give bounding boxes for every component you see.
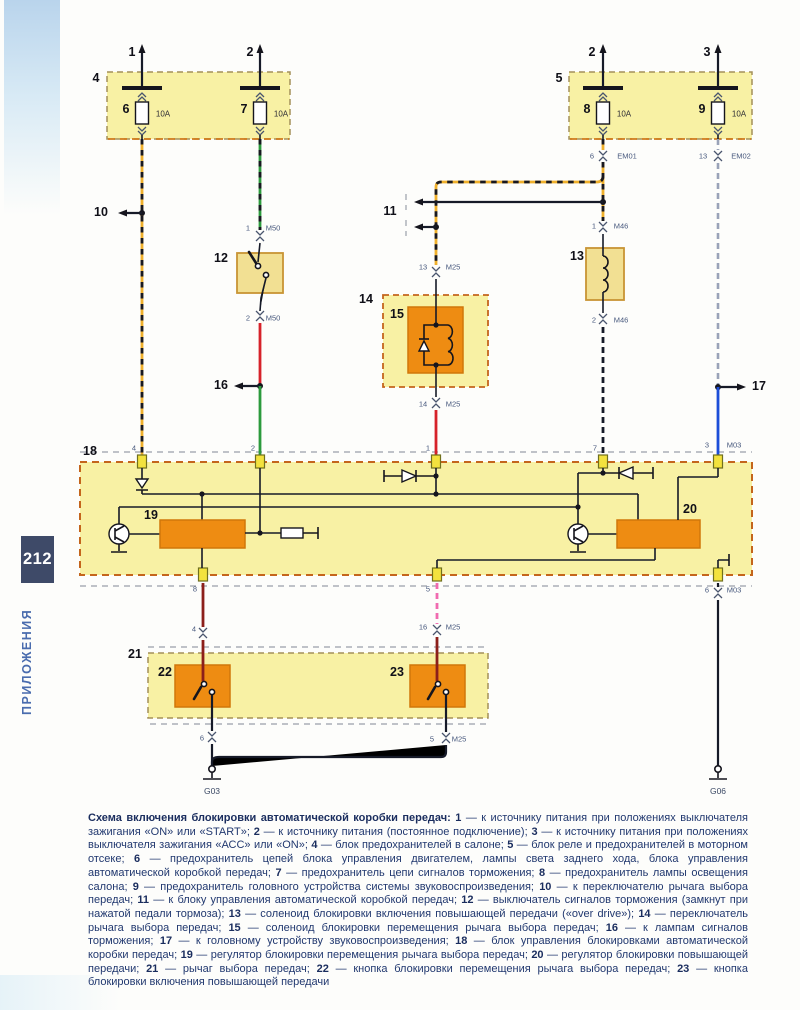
- wiring-diagram-svg: [0, 0, 800, 808]
- caption-body: 1 — к источнику питания при положениях в…: [88, 812, 748, 988]
- caption-item-text: — предохранитель головного устройства си…: [139, 881, 534, 893]
- diagram-label-19: 19: [144, 508, 158, 522]
- caption-item-number: 23: [677, 963, 689, 975]
- caption-item-number: 21: [146, 963, 158, 975]
- caption-item-number: 15: [228, 922, 240, 934]
- ground-junction-g06: [715, 766, 721, 772]
- transistor-20-icon: [568, 524, 588, 544]
- caption-item-number: 17: [160, 935, 172, 947]
- caption-item-text: — к блоку управления автоматической коро…: [149, 894, 457, 906]
- caption-item-number: 13: [229, 908, 241, 920]
- caption-item-text: — предохранитель цепи сигналов торможени…: [282, 867, 535, 879]
- diagram-label-1: 1: [246, 224, 250, 233]
- diagram-label-15: 15: [390, 307, 404, 321]
- ground-g03-icon: [203, 772, 221, 779]
- diagram-label-17: 17: [752, 379, 766, 393]
- diagram-label-13: 13: [699, 152, 707, 161]
- diagram-label-3: 3: [705, 441, 709, 450]
- diagram-label-m03: M03: [727, 441, 742, 450]
- caption-item-number: 16: [606, 922, 618, 934]
- diagram-label-4: 4: [132, 444, 136, 453]
- caption-item-text: — блок предохранителей в салоне;: [317, 839, 503, 851]
- diagram-label-m25: M25: [446, 623, 461, 632]
- caption-item-number: 12: [461, 894, 473, 906]
- diagram-label-m25: M25: [446, 400, 461, 409]
- diagram-label-11: 11: [383, 204, 396, 218]
- diagram-label-2: 2: [589, 45, 596, 59]
- diagram-label-5: 5: [430, 735, 434, 744]
- diagram-label-13: 13: [570, 249, 584, 263]
- diagram-label-10a: 10A: [732, 110, 746, 119]
- diagram-label-14: 14: [419, 400, 427, 409]
- diagram-label-21: 21: [128, 647, 142, 661]
- caption-item-text: — регулятор блокировки перемещения рычаг…: [193, 949, 528, 961]
- caption-item-number: 20: [531, 949, 543, 961]
- diagram-label-6: 6: [590, 152, 594, 161]
- caption-item-text: — кнопка блокировки перемещения рычага в…: [329, 963, 670, 975]
- diagram-label-7: 7: [593, 444, 597, 453]
- diagram-label-2: 2: [247, 45, 254, 59]
- caption-item-text: — рычаг выбора передач;: [158, 963, 310, 975]
- diagram-label-g06: G06: [710, 786, 726, 796]
- diagram-label-8: 8: [584, 102, 591, 116]
- caption-item-number: 14: [638, 908, 650, 920]
- caption-item-number: 22: [317, 963, 329, 975]
- diagram-label-g03: G03: [204, 786, 220, 796]
- caption-item-number: 10: [539, 881, 551, 893]
- diagram-label-em02: EM02: [731, 152, 751, 161]
- ground-junction-g03: [209, 766, 215, 772]
- wire-em02-chain: [714, 139, 746, 456]
- diagram-label-m50: M50: [266, 314, 281, 323]
- resistor-icon: [281, 528, 303, 538]
- diagram-label-22: 22: [158, 665, 172, 679]
- diagram-label-1: 1: [592, 222, 596, 231]
- brake-switch-box-12: [237, 253, 283, 293]
- caption-item-number: 18: [455, 935, 467, 947]
- diagram-label-6: 6: [123, 102, 130, 116]
- diagram-label-10a: 10A: [274, 110, 288, 119]
- diagram-label-9: 9: [699, 102, 706, 116]
- diagram-label-em01: EM01: [617, 152, 637, 161]
- diagram-label-23: 23: [390, 665, 404, 679]
- diagram-label-4: 4: [93, 71, 100, 85]
- caption-item-number: 19: [181, 949, 193, 961]
- diagram-label-m03: M03: [727, 586, 742, 595]
- regulator-box-20: [617, 520, 700, 548]
- diagram-label-10: 10: [94, 205, 108, 219]
- diagram-label-10a: 10A: [617, 110, 631, 119]
- ground-g06-icon: [709, 772, 727, 779]
- diagram-label-m25: M25: [446, 263, 461, 272]
- wire-yellow-black-left: [118, 139, 145, 456]
- caption-item-text: — к головному устройству звуковоспроизве…: [172, 935, 449, 947]
- caption-item-text: — к источнику питания (постоянное подклю…: [260, 826, 528, 838]
- diagram-label-16: 16: [419, 623, 427, 632]
- diagram-label-5: 5: [556, 71, 563, 85]
- diagram-label-m25: M25: [452, 735, 467, 744]
- diagram-label-20: 20: [683, 502, 697, 516]
- caption-item-text: — соленоид блокировки включения повышающ…: [241, 908, 634, 920]
- diagram-label-13: 13: [419, 263, 427, 272]
- diagram-label-12: 12: [214, 251, 228, 265]
- diagram-label-4: 4: [192, 625, 196, 634]
- diagram-label-5: 5: [426, 585, 430, 594]
- wiring-diagram: 122345678910A10A10A10A101112131415161718…: [0, 0, 800, 808]
- diagram-label-m46: M46: [614, 222, 629, 231]
- diagram-label-3: 3: [704, 45, 711, 59]
- wire-brake-switch-chain: [234, 139, 269, 456]
- diagram-label-10a: 10A: [156, 110, 170, 119]
- diagram-label-2: 2: [251, 444, 255, 453]
- diagram-label-16: 16: [214, 378, 228, 392]
- diagram-label-7: 7: [241, 102, 248, 116]
- transistor-19-icon: [109, 524, 129, 544]
- caption-item-text: — соленоид блокировки перемещения рычага…: [241, 922, 599, 934]
- diagram-label-6: 6: [200, 734, 204, 743]
- diagram-label-m50: M50: [266, 224, 281, 233]
- diagram-label-2: 2: [592, 316, 596, 325]
- diagram-label-14: 14: [359, 292, 373, 306]
- diagram-label-18: 18: [83, 444, 97, 458]
- ground-g06-wiring: [709, 583, 727, 779]
- manual-page: 212 ПРИЛОЖЕНИЯ: [0, 0, 800, 1010]
- diagram-label-1: 1: [426, 444, 430, 453]
- caption-title: Схема включения блокировки автоматическо…: [88, 812, 451, 824]
- regulator-box-19: [160, 520, 245, 548]
- caption-item-number: 11: [137, 894, 149, 906]
- caption: Схема включения блокировки автоматическо…: [88, 812, 748, 990]
- diagram-label-6: 6: [705, 586, 709, 595]
- diagram-label-m46: M46: [614, 316, 629, 325]
- diagram-label-1: 1: [129, 45, 136, 59]
- diagram-label-2: 2: [246, 314, 250, 323]
- diagram-label-8: 8: [193, 585, 197, 594]
